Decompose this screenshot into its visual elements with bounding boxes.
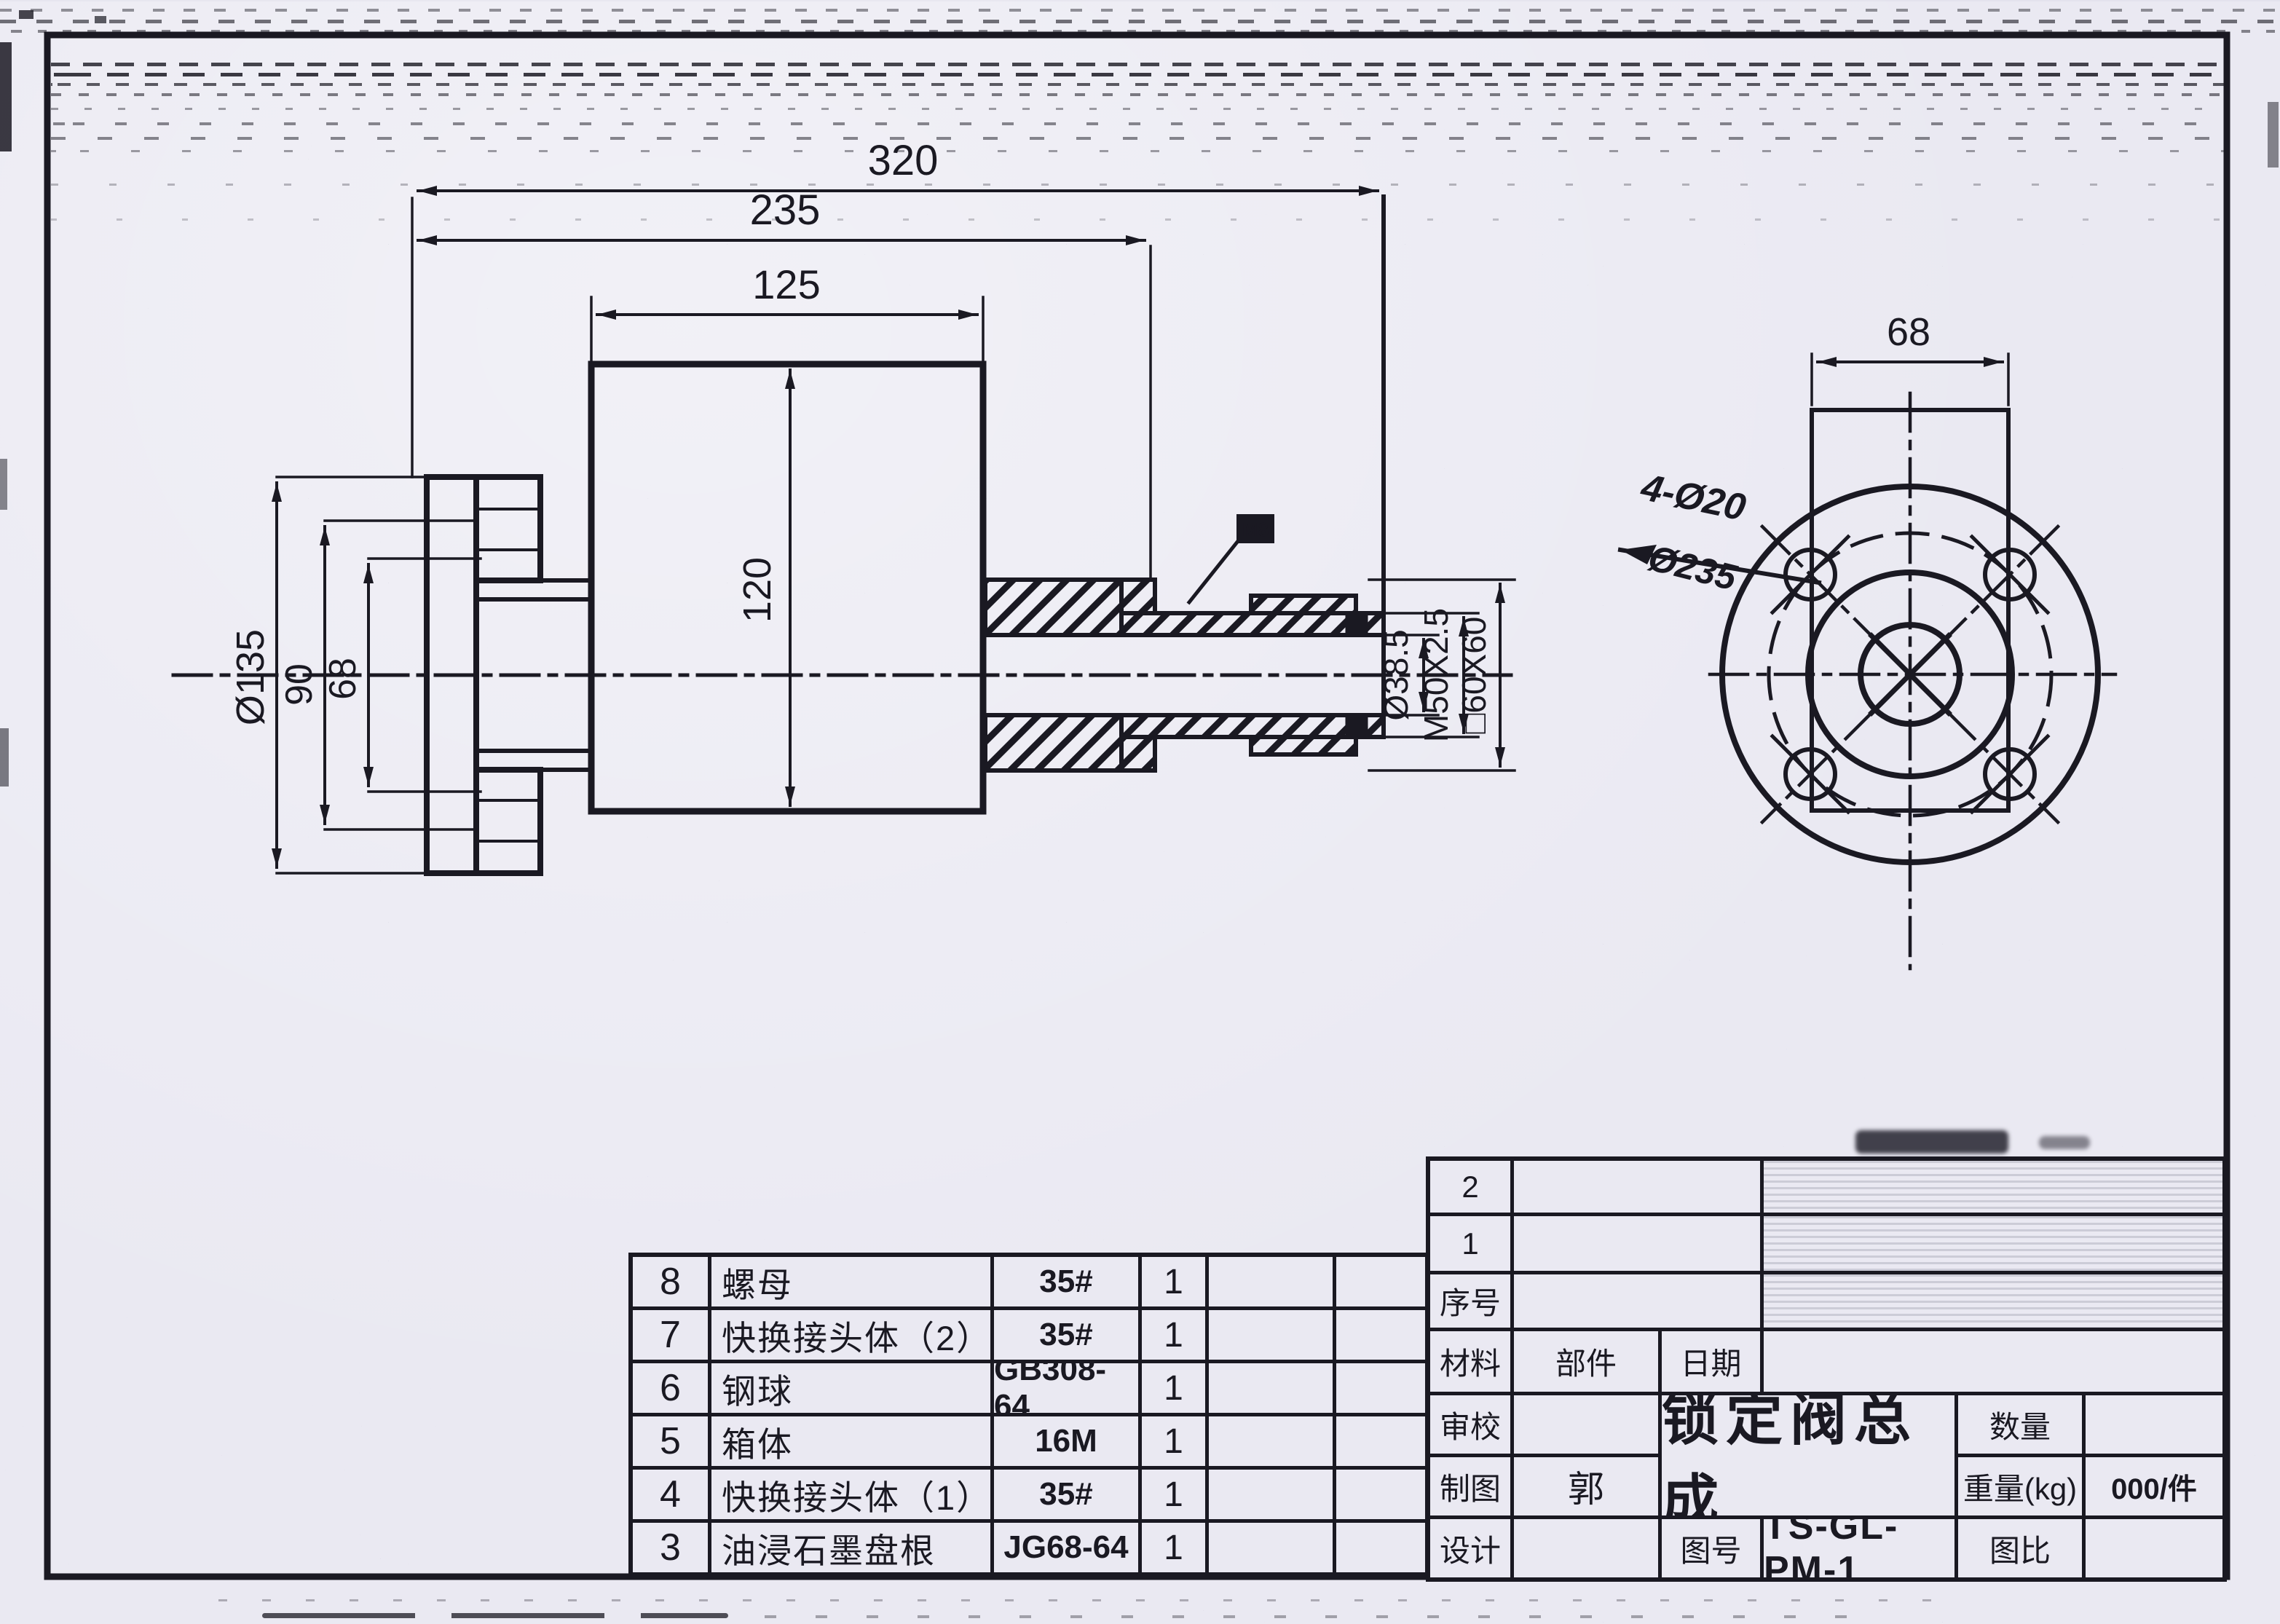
dim-body-height: 120: [735, 557, 779, 623]
dim-body-width: 125: [752, 261, 820, 307]
check-label: 审校: [1430, 1395, 1510, 1454]
check-value: [1514, 1395, 1658, 1454]
dim-flange-od: Ø135: [229, 629, 272, 725]
scale-value: [2086, 1519, 2222, 1577]
part-name: 快换接头体（2）: [711, 1310, 990, 1360]
part-qty: 1: [1142, 1363, 1205, 1413]
part-name: 油浸石墨盘根: [711, 1523, 990, 1572]
part-empty: [1209, 1310, 1333, 1360]
ball-section-dark: [1346, 613, 1368, 635]
end-dim-68-label: 68: [1887, 310, 1930, 354]
part-empty: [1209, 1257, 1333, 1306]
part-spec: GB308-64: [994, 1363, 1138, 1413]
seq-header-desc: [1514, 1274, 1760, 1328]
dim-overall-width: 320: [868, 137, 939, 184]
part-qty: 1: [1142, 1257, 1205, 1306]
part-empty: [1336, 1310, 1425, 1360]
part-spec: 35#: [994, 1470, 1138, 1519]
part-no: 4: [633, 1470, 708, 1519]
part-spec: 35#: [994, 1257, 1138, 1306]
draft-value: 郭: [1514, 1457, 1658, 1515]
part-empty: [1209, 1523, 1333, 1572]
qty-value: [2086, 1395, 2222, 1454]
dim-to-step: 235: [750, 186, 821, 234]
part-name: 螺母: [711, 1257, 990, 1306]
seq-1: 1: [1430, 1216, 1510, 1271]
material-label: 材料: [1430, 1331, 1510, 1392]
part-empty: [1209, 1363, 1333, 1413]
seq-1-strip: [1764, 1216, 2222, 1271]
dim-flange-bore: 68: [322, 658, 364, 700]
part-no: 3: [633, 1523, 708, 1572]
part-qty: 1: [1142, 1310, 1205, 1360]
part-qty: 1: [1142, 1416, 1205, 1466]
weight-label: 重量(kg): [1958, 1457, 2082, 1515]
dwg-no-label: 图号: [1662, 1519, 1760, 1577]
dim-extension-lines: [277, 198, 1515, 873]
holes-note: 4-Ø20: [1637, 466, 1749, 529]
part-no: 7: [633, 1310, 708, 1360]
seq-header-strip: [1764, 1274, 2222, 1328]
part-spec: JG68-64: [994, 1523, 1138, 1572]
part-spec: 16M: [994, 1416, 1138, 1466]
part-name: 钢球: [711, 1363, 990, 1413]
dim-thread: M50X2.5: [1417, 608, 1455, 742]
part-name: 快换接头体（1）: [711, 1470, 990, 1519]
qty-label: 数量: [1958, 1395, 2082, 1454]
dwg-no-value: TS-GL-PM-1: [1764, 1519, 1954, 1577]
part-label: 部件: [1514, 1331, 1658, 1392]
part-no: 6: [633, 1363, 708, 1413]
title-block: 2 1 序号 材料 部件 日期 审校 锁定阀总成 数量 制图 郭 重量(kg) …: [1426, 1156, 2227, 1582]
part-no: 8: [633, 1257, 708, 1306]
side-view: M8: [173, 137, 1515, 873]
dim-lines: [277, 191, 1500, 867]
seq-2-strip: [1764, 1161, 2222, 1213]
part-empty: [1209, 1470, 1333, 1519]
part-empty: [1336, 1523, 1425, 1572]
part-qty: 1: [1142, 1470, 1205, 1519]
seq-2-desc: [1514, 1161, 1760, 1213]
part-qty: 1: [1142, 1523, 1205, 1572]
ball-section-dark-2: [1346, 715, 1368, 737]
parts-table: 8 螺母 35# 1 7 快换接头体（2） 35# 1 6 钢球 GB308-6…: [628, 1253, 1429, 1577]
leader-note: Ø235: [1644, 537, 1741, 599]
dim-flange-step: 90: [278, 663, 320, 706]
part-empty: [1336, 1257, 1425, 1306]
m8-label: M8: [1242, 519, 1269, 540]
part-name: 箱体: [711, 1416, 990, 1466]
seq-1-desc: [1514, 1216, 1760, 1271]
valve-body-outline: [591, 364, 983, 811]
date-value: [1764, 1331, 2222, 1392]
end-view: 68 4-Ø20 Ø235: [1620, 310, 2115, 969]
date-label: 日期: [1662, 1331, 1760, 1392]
dim-square: □60X60: [1455, 617, 1493, 734]
design-value: [1514, 1519, 1658, 1577]
weight-value: 000/件: [2086, 1457, 2222, 1515]
part-empty: [1336, 1363, 1425, 1413]
part-empty: [1209, 1416, 1333, 1466]
part-empty: [1336, 1470, 1425, 1519]
scale-label: 图比: [1958, 1519, 2082, 1577]
draft-label: 制图: [1430, 1457, 1510, 1515]
seq-header: 序号: [1430, 1274, 1510, 1328]
seq-2: 2: [1430, 1161, 1510, 1213]
m8-leader-line: [1189, 541, 1238, 602]
part-no: 5: [633, 1416, 708, 1466]
drawing-sheet: M8: [0, 0, 2280, 1624]
design-label: 设计: [1430, 1519, 1510, 1577]
dim-shaft-bore: Ø38.5: [1377, 629, 1415, 720]
drawing-title: 锁定阀总成: [1662, 1395, 1954, 1515]
part-empty: [1336, 1416, 1425, 1466]
part-spec: 35#: [994, 1310, 1138, 1360]
